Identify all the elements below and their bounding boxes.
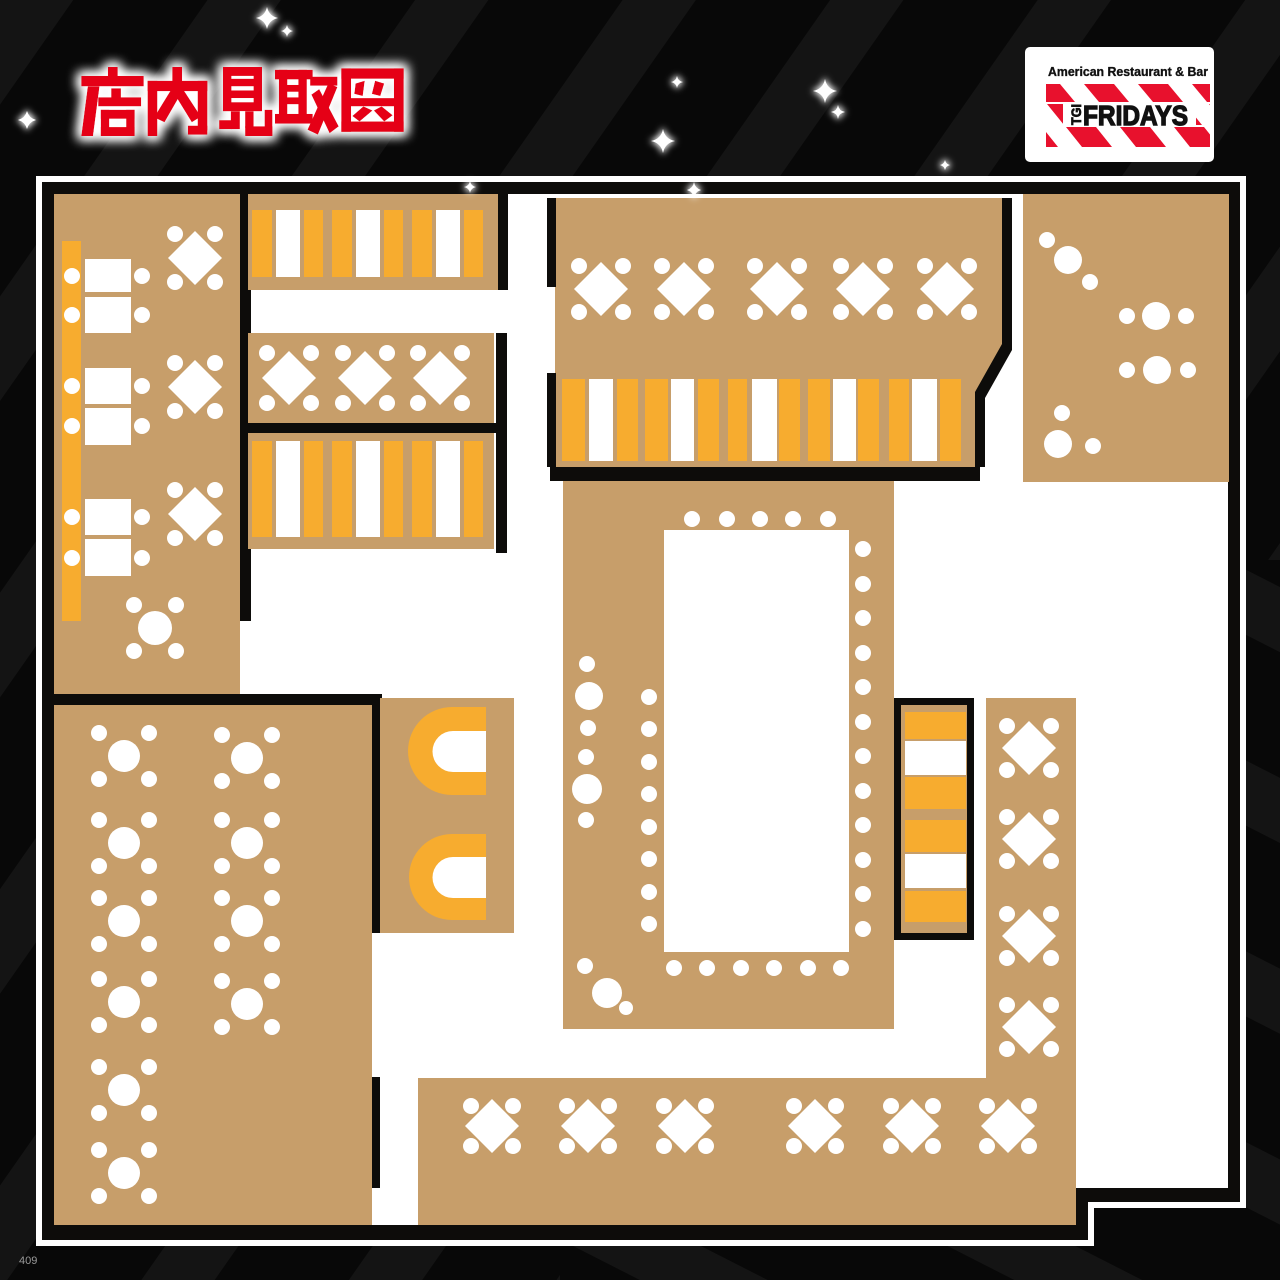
svg-text:409: 409 [19, 1255, 37, 1267]
svg-text:American Restaurant & Bar: American Restaurant & Bar [1048, 64, 1208, 79]
svg-text:FRIDAYS: FRIDAYS [1083, 100, 1188, 131]
svg-text:TGI: TGI [1068, 104, 1084, 125]
